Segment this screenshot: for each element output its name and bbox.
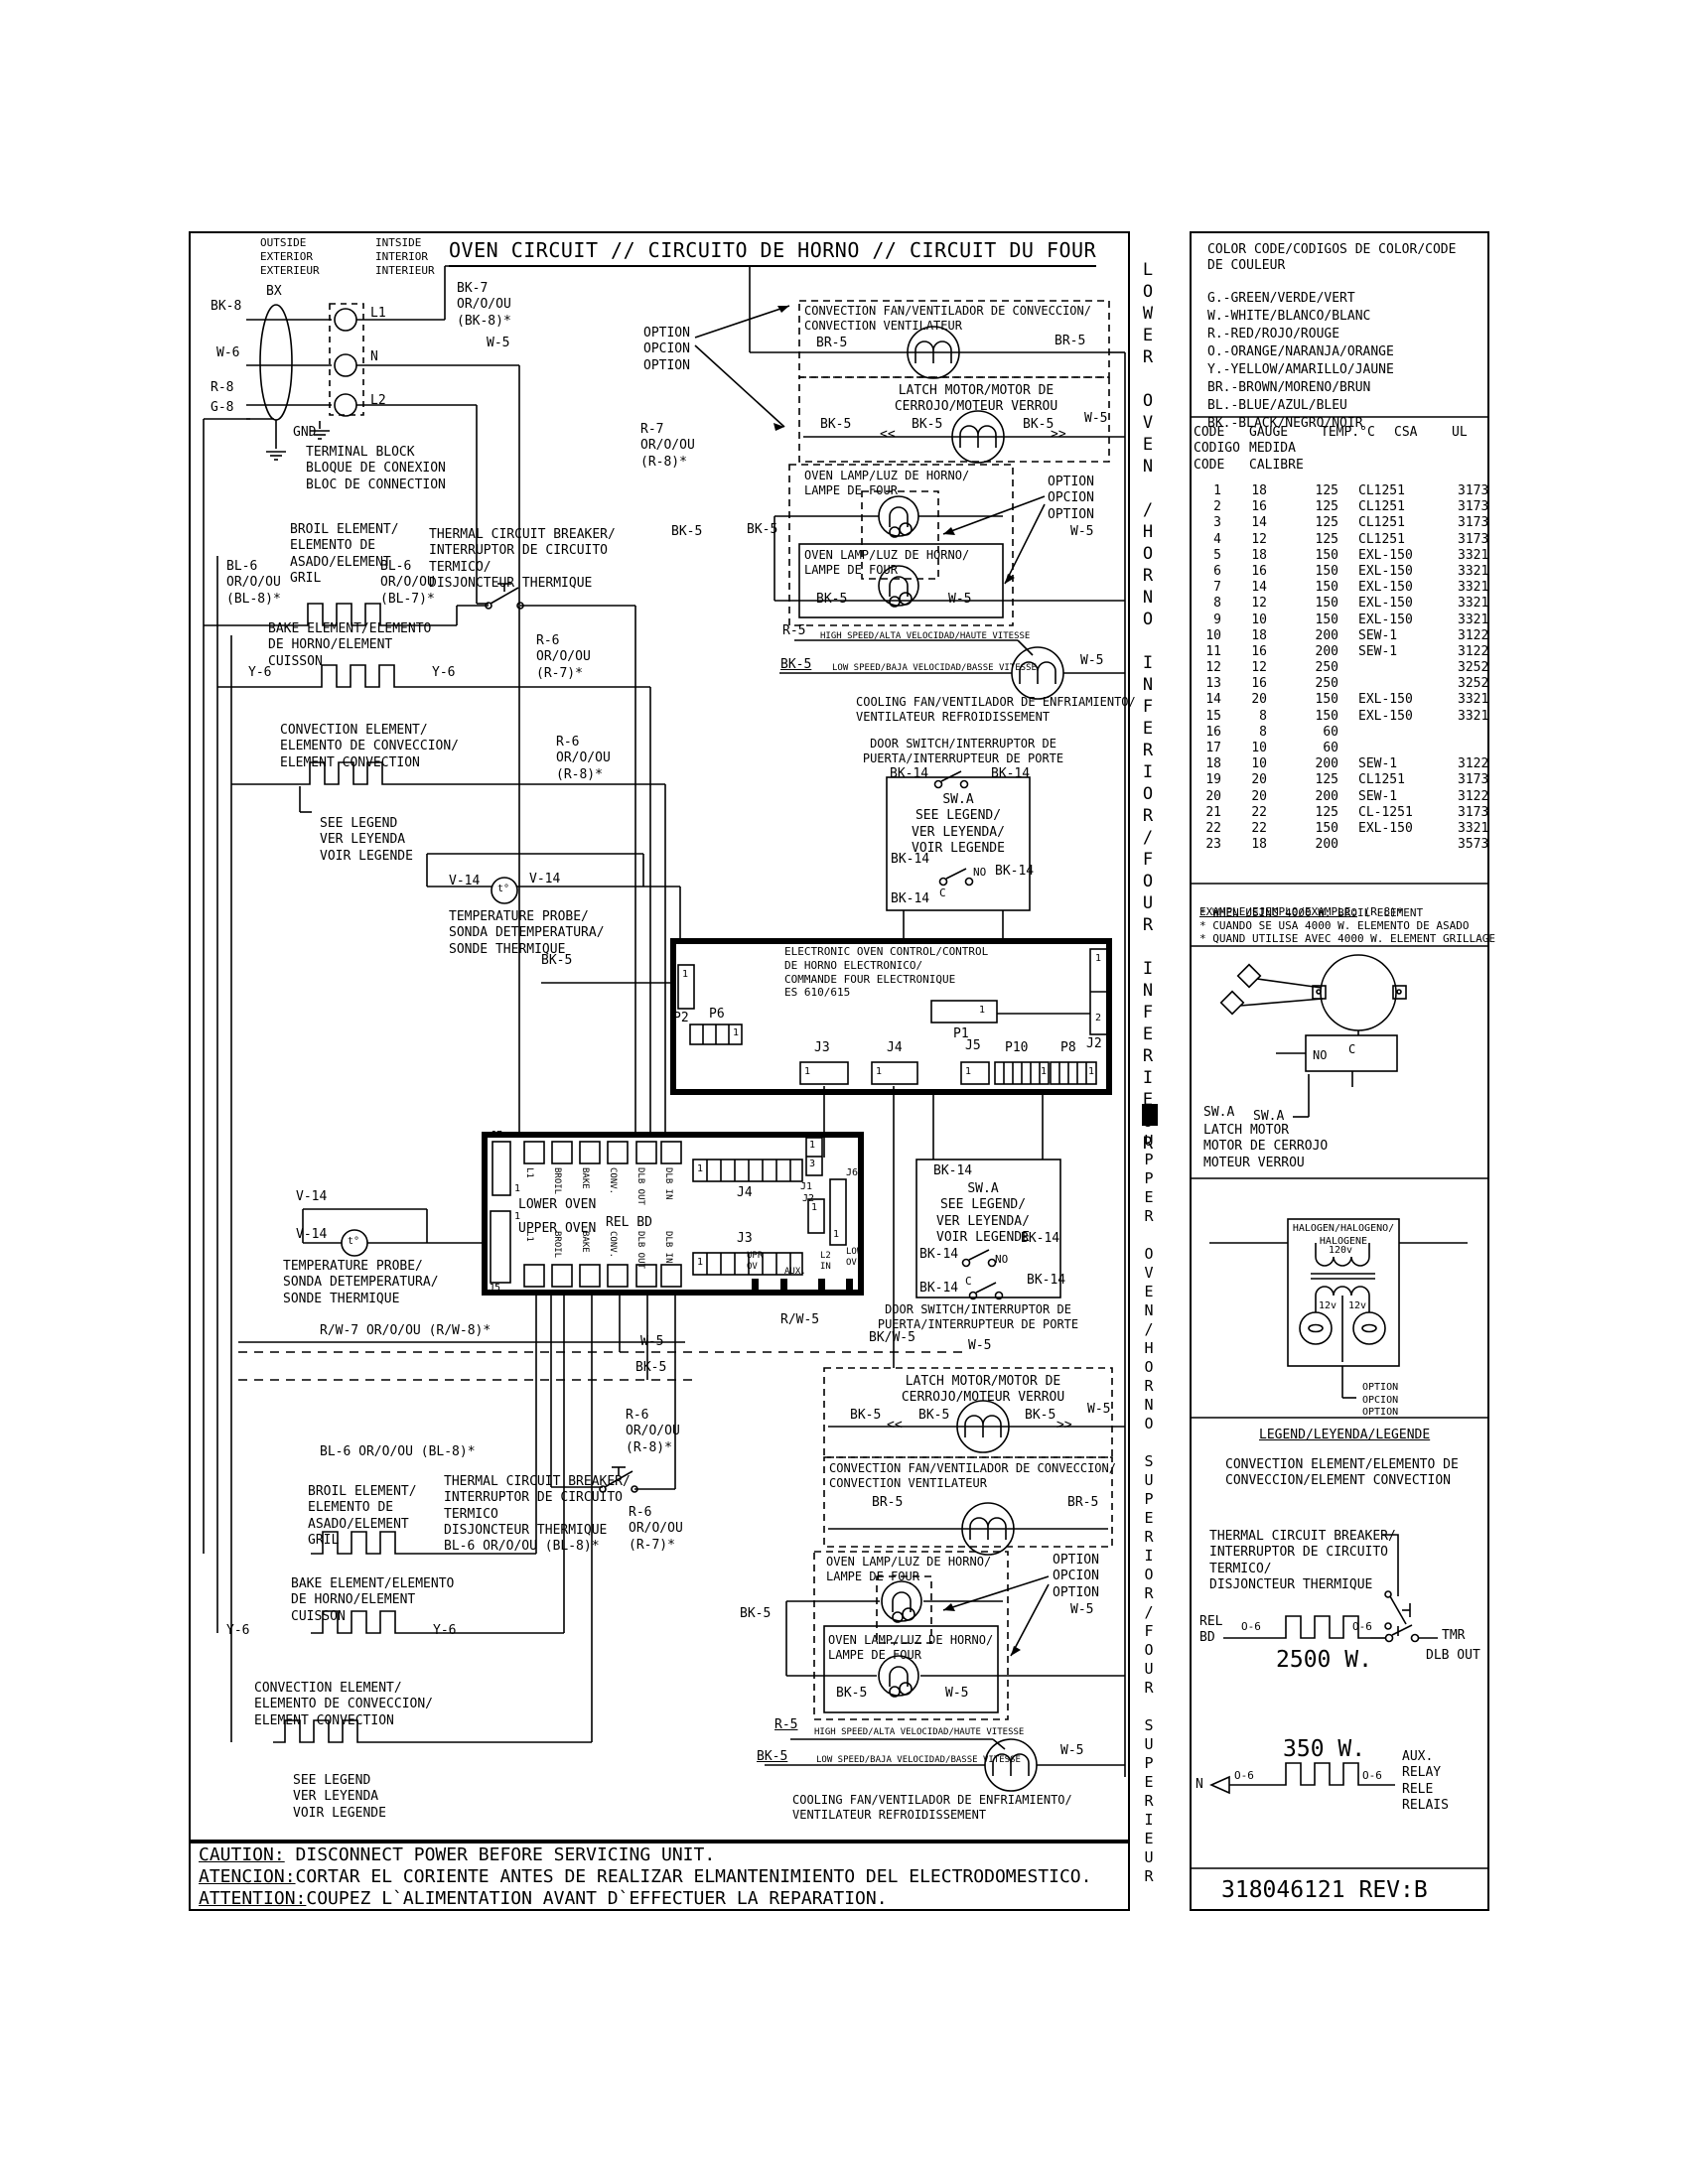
- wire-label-bl6-line1: BL-6 OR/O/OU (BL-8)*: [320, 1444, 476, 1460]
- wire-table-cell: CL-1251: [1338, 805, 1454, 821]
- wire-table-cell: 5: [1188, 548, 1221, 564]
- wire-label-bk5-g: BK-5: [816, 592, 847, 608]
- wire-table-cell: 16: [1188, 725, 1221, 741]
- eoc-j2-pin1: 1: [1095, 953, 1101, 966]
- oven-lamp-label-2b: OVEN LAMP/LUZ DE HORNO/ LAMPE DE FOUR: [828, 1633, 993, 1663]
- wire-table-cell: 9: [1188, 613, 1221, 628]
- contact-no-lower: NO: [973, 866, 986, 880]
- relay-pin-labels-bottom: L1BROILBAKECONV.DLB OUTDLB IN: [524, 1231, 682, 1291]
- wire-label-r6-8: R-6 OR/O/OU (R-8)*: [556, 735, 611, 783]
- wire-label-w5-top: W-5: [487, 336, 509, 351]
- wire-table-cell: 3173: [1454, 499, 1507, 515]
- wire-label-bk5-k: BK-5: [918, 1408, 949, 1424]
- wire-label-bk14-h: BK-14: [919, 1247, 958, 1263]
- wire-table-row: 616150EXL-1503321: [1188, 564, 1507, 580]
- rel-j1-pin3: 3: [809, 1159, 815, 1171]
- legend-n: N: [1196, 1777, 1203, 1793]
- wire-table-row: 714150EXL-1503321: [1188, 580, 1507, 596]
- wire-table-cell: 150: [1267, 692, 1338, 708]
- table-header-code: CODE CODIGO CODE: [1194, 425, 1240, 474]
- wire-table-cell: 13: [1188, 676, 1221, 692]
- eoc-j5-pin1: 1: [965, 1066, 971, 1079]
- wire-table-row: 158150EXL-1503321: [1188, 709, 1507, 725]
- wire-label-r7: R-7 OR/O/OU (R-8)*: [640, 422, 695, 471]
- wire-label-br5-b: BR-5: [1055, 334, 1085, 349]
- wire-table-row: 1420150EXL-1503321: [1188, 692, 1507, 708]
- wire-table-cell: SEW-1: [1338, 756, 1454, 772]
- legend-rel-bd: REL BD: [1199, 1614, 1222, 1647]
- wire-label-bk5-n: BK-5: [836, 1686, 867, 1702]
- wire-table-cell: SEW-1: [1338, 628, 1454, 644]
- wire-table-cell: 18: [1188, 756, 1221, 772]
- page-title: OVEN CIRCUIT // CIRCUITO DE HORNO // CIR…: [449, 238, 1096, 267]
- wire-table-cell: CL1251: [1338, 499, 1454, 515]
- wire-label-bk5-e: BK-5: [1023, 417, 1054, 433]
- example-notes: * WHEN USING 4000 W. BROIL ELEMENT* CUAN…: [1199, 906, 1495, 945]
- convection-element-label-lower: CONVECTION ELEMENT/ ELEMENTO DE CONVECCI…: [280, 723, 459, 771]
- wire-label-w5-c: W-5: [948, 592, 971, 608]
- wire-table-cell: EXL-150: [1338, 613, 1454, 628]
- list-item: DLB IN: [663, 1231, 682, 1291]
- wire-label-bk5-m: BK-5: [740, 1606, 771, 1622]
- wire-table-cell: 200: [1267, 644, 1338, 660]
- wire-table-cell: EXL-150: [1338, 692, 1454, 708]
- wire-label-w5-e: W-5: [640, 1334, 663, 1350]
- wire-table-cell: EXL-150: [1338, 580, 1454, 596]
- wire-table-cell: 10: [1221, 613, 1267, 628]
- oven-lamp-symbols: [879, 496, 921, 1697]
- legend-dlb-out: DLB OUT: [1426, 1648, 1480, 1664]
- wire-table-cell: 20: [1221, 692, 1267, 708]
- wire-table-cell: 250: [1267, 660, 1338, 676]
- eoc-j2-label: J2: [1086, 1036, 1102, 1052]
- wire-table-cell: 10: [1221, 741, 1267, 756]
- wire-table-cell: 2: [1188, 499, 1221, 515]
- terminal-block-label: TERMINAL BLOCK BLOQUE DE CONEXION BLOC D…: [306, 445, 446, 493]
- wire-table-row: 910150EXL-1503321: [1188, 613, 1507, 628]
- wire-table-cell: 22: [1188, 821, 1221, 837]
- wire-table-cell: 150: [1267, 709, 1338, 725]
- wire-table-cell: 200: [1267, 837, 1338, 853]
- eoc-j2-pin2: 2: [1095, 1013, 1101, 1025]
- wire-table-cell: 150: [1267, 821, 1338, 837]
- contact-c-upper: C: [965, 1275, 972, 1289]
- wire-table-cell: 125: [1267, 772, 1338, 788]
- list-item: DLB OUT: [635, 1231, 654, 1291]
- eoc-label: ELECTRONIC OVEN CONTROL/CONTROL DE HORNO…: [784, 945, 988, 1000]
- wire-label-r6-8-upper: R-6 OR/O/OU (R-8)*: [626, 1408, 680, 1456]
- gnd-label: GND: [293, 425, 316, 441]
- wire-table-cell: 3173: [1454, 805, 1507, 821]
- wire-table-cell: 150: [1267, 596, 1338, 612]
- wire-table-cell: 3122: [1454, 644, 1507, 660]
- chevron-left-icon: <<: [880, 427, 896, 443]
- wire-table-cell: 11: [1188, 644, 1221, 660]
- wire-label-r8: R-8: [211, 380, 233, 396]
- wire-table-cell: 150: [1267, 613, 1338, 628]
- wire-table-cell: 7: [1188, 580, 1221, 596]
- wire-table-cell: 18: [1221, 483, 1267, 499]
- wire-table-cell: 150: [1267, 548, 1338, 564]
- wire-table-cell: 20: [1221, 789, 1267, 805]
- legend-o6-b: O-6: [1352, 1620, 1372, 1634]
- wire-table-cell: 200: [1267, 628, 1338, 644]
- halogen-option-label: OPTION OPCION OPTION: [1362, 1382, 1398, 1420]
- wire-table-cell: 21: [1188, 805, 1221, 821]
- sidebar-upper-oven: UPPER OVEN/HORNO SUPERIOR/FOUR SUPERIEUR: [1140, 1132, 1158, 1886]
- wire-table-cell: 3321: [1454, 692, 1507, 708]
- legend-convection: CONVECTION ELEMENT/ELEMENTO DE CONVECCIO…: [1225, 1457, 1459, 1490]
- low-speed-label-lower: LOW SPEED/BAJA VELOCIDAD/BASSE VITESSE: [832, 663, 1037, 674]
- wire-table-cell: 16: [1221, 499, 1267, 515]
- rel-l2-in-label: L2 IN: [820, 1251, 831, 1274]
- cooling-fan-label-upper: COOLING FAN/VENTILADOR DE ENFRIAMIENTO/ …: [792, 1793, 1072, 1823]
- wire-label-bkw5: BK/W-5: [869, 1330, 915, 1346]
- wire-table-cell: SEW-1: [1338, 644, 1454, 660]
- wire-table-row: 2020200SEW-13122: [1188, 789, 1507, 805]
- wire-label-br5-a: BR-5: [816, 336, 847, 351]
- latch-motor-label-upper: LATCH MOTOR/MOTOR DE CERROJO/MOTEUR VERR…: [859, 1374, 1107, 1407]
- legend-breaker: THERMAL CIRCUIT BREAKER/ INTERRUPTOR DE …: [1209, 1529, 1396, 1593]
- wire-table-cell: 12: [1188, 660, 1221, 676]
- latch-caption: LATCH MOTOR MOTOR DE CERROJO MOTEUR VERR…: [1203, 1123, 1328, 1171]
- wire-label-y6-b: Y-6: [432, 665, 455, 681]
- wire-table-cell: 16: [1221, 676, 1267, 692]
- rel-bd-label: REL BD: [606, 1215, 652, 1231]
- convection-element-label-upper: CONVECTION ELEMENT/ ELEMENTO DE CONVECCI…: [254, 1681, 433, 1729]
- rel-low-ov-label: LOW OV: [846, 1247, 862, 1270]
- list-item: BL.-BLUE/AZUL/BLEU: [1207, 397, 1394, 415]
- wire-table-cell: 19: [1188, 772, 1221, 788]
- wire-label-bk14-j: BK-14: [1027, 1273, 1065, 1289]
- wire-table-cell: 6: [1188, 564, 1221, 580]
- wire-label-bl6-line2: BL-6 OR/O/OU (BL-8)*: [444, 1539, 600, 1555]
- color-code-list: G.-GREEN/VERDE/VERTW.-WHITE/BLANCO/BLANC…: [1207, 290, 1394, 433]
- table-header-csa: CSA: [1394, 425, 1417, 441]
- wire-table-row: 1810200SEW-13122: [1188, 756, 1507, 772]
- caution-label-2: ATENCION:: [199, 1866, 296, 1887]
- wire-table-cell: 12: [1221, 596, 1267, 612]
- latch-motor-drawing: [1221, 955, 1406, 1117]
- thermal-breaker-symbols: [486, 584, 637, 1492]
- convection-fan-label-upper: CONVECTION FAN/VENTILADOR DE CONVECCION/…: [829, 1461, 1116, 1491]
- wire-label-w5-g: W-5: [1087, 1402, 1110, 1418]
- wire-table-cell: 3252: [1454, 676, 1507, 692]
- wire-label-bk8: BK-8: [211, 299, 241, 315]
- wire-table-row: 13162503252: [1188, 676, 1507, 692]
- wire-table-cell: EXL-150: [1338, 709, 1454, 725]
- wire-label-bk7: BK-7 OR/O/OU (BK-8)*: [457, 281, 511, 330]
- wire-label-bk5-l: BK-5: [1025, 1408, 1055, 1424]
- caution-line-2: ATENCION:CORTAR EL CORIENTE ANTES DE REA…: [199, 1866, 1091, 1887]
- terminal-n: N: [370, 349, 378, 365]
- legend-aux-relay: AUX. RELAY RELE RELAIS: [1402, 1749, 1449, 1814]
- wire-table-cell: 10: [1188, 628, 1221, 644]
- latch-swa1-label: SW.A: [1203, 1105, 1234, 1121]
- wire-label-bk5-h: BK-5: [780, 657, 811, 673]
- wire-label-v14-d: V-14: [296, 1227, 327, 1243]
- wire-table-cell: 3: [1188, 515, 1221, 531]
- rel-j6-pin1: 1: [833, 1229, 839, 1242]
- wire-table-cell: CL1251: [1338, 772, 1454, 788]
- color-code-title: COLOR CODE/CODIGOS DE COLOR/CODE DE COUL…: [1207, 242, 1456, 275]
- wire-label-bk14-b: BK-14: [991, 766, 1030, 782]
- legend-tmr: TMR: [1442, 1628, 1465, 1644]
- wire-label-rw5: R/W-5: [780, 1312, 819, 1328]
- latch-c-label: C: [1348, 1042, 1355, 1057]
- wire-label-v14-a: V-14: [449, 874, 480, 889]
- wire-table-cell: 8: [1221, 709, 1267, 725]
- wire-table-cell: 8: [1221, 725, 1267, 741]
- wire-table-cell: 20: [1188, 789, 1221, 805]
- wire-table-cell: 4: [1188, 532, 1221, 548]
- oven-wiring-diagram: OUTSIDE EXTERIOR EXTERIEUR INTSIDE INTER…: [0, 0, 1688, 2184]
- wire-table-row: 171060: [1188, 741, 1507, 756]
- broil-element-label-upper: BROIL ELEMENT/ ELEMENTO DE ASADO/ELEMENT…: [308, 1484, 417, 1549]
- bake-element-label-lower: BAKE ELEMENT/ELEMENTO DE HORNO/ELEMENT C…: [268, 621, 431, 670]
- latch-no-label: NO: [1313, 1048, 1327, 1063]
- legend-o6-c: O-6: [1234, 1769, 1254, 1783]
- wire-table-cell: 22: [1221, 805, 1267, 821]
- wire-label-br5-d: BR-5: [1067, 1495, 1098, 1511]
- oven-lamp-label-1a: OVEN LAMP/LUZ DE HORNO/ LAMPE DE FOUR: [804, 469, 969, 498]
- wire-table-cell: 18: [1221, 628, 1267, 644]
- wire-table-cell: 18: [1221, 837, 1267, 853]
- eoc-j5-label: J5: [965, 1038, 981, 1054]
- legend-o6-a: O-6: [1241, 1620, 1261, 1634]
- wire-table-cell: 150: [1267, 580, 1338, 596]
- wire-table-row: 2222150EXL-1503321: [1188, 821, 1507, 837]
- halogen-12v-a: 12v: [1319, 1300, 1336, 1313]
- rel-j1-label: J1: [800, 1181, 812, 1194]
- wire-table-cell: 3122: [1454, 789, 1507, 805]
- eoc-p6-label: P6: [709, 1007, 725, 1023]
- wire-table-cell: 3321: [1454, 821, 1507, 837]
- option-label-3: OPTION OPCION OPTION: [1053, 1553, 1099, 1601]
- caution-text-2: CORTAR EL CORIENTE ANTES DE REALIZAR ELM…: [296, 1866, 1092, 1887]
- legend-2500w: 2500 W.: [1276, 1646, 1372, 1675]
- wire-table-cell: 125: [1267, 805, 1338, 821]
- see-legend-upper: SEE LEGEND VER LEYENDA VOIR LEGENDE: [293, 1773, 386, 1822]
- wire-table-cell: EXL-150: [1338, 548, 1454, 564]
- wire-label-bk5-j: BK-5: [850, 1408, 881, 1424]
- eoc-p10-label: P10: [1005, 1040, 1028, 1056]
- bake-element-label-upper: BAKE ELEMENT/ELEMENTO DE HORNO/ELEMENT C…: [291, 1576, 454, 1625]
- rel-upr-ov-label: UPR OV: [747, 1251, 763, 1274]
- contact-c-lower: C: [939, 887, 946, 900]
- wire-label-bk5-c: BK-5: [820, 417, 851, 433]
- wire-table-cell: 16: [1221, 564, 1267, 580]
- eoc-p2-label: P2: [673, 1011, 689, 1026]
- wire-table-row: 12122503252: [1188, 660, 1507, 676]
- option-label-2: OPTION OPCION OPTION: [1048, 475, 1094, 523]
- legend-350w: 350 W.: [1283, 1735, 1365, 1764]
- caution-label-1: CAUTION:: [199, 1844, 285, 1865]
- wire-table-cell: 15: [1188, 709, 1221, 725]
- rel-j2-pin1: 1: [811, 1202, 817, 1215]
- wire-table-row: 1116200SEW-13122: [1188, 644, 1507, 660]
- probe-t-symbol-2: t°: [348, 1236, 359, 1249]
- caution-text-3: COUPEZ L`ALIMENTATION AVANT D`EFFECTUER …: [306, 1888, 887, 1909]
- rel-upper-oven-label: UPPER OVEN: [518, 1221, 596, 1237]
- wire-table-cell: 3321: [1454, 596, 1507, 612]
- wire-label-bk5-o: BK-5: [757, 1749, 787, 1765]
- wire-table-cell: 20: [1221, 772, 1267, 788]
- probe-t-symbol-1: t°: [497, 884, 509, 896]
- wire-table-cell: 3321: [1454, 709, 1507, 725]
- wire-table-cell: 125: [1267, 515, 1338, 531]
- rel-j7-label: J7: [491, 1130, 502, 1143]
- eoc-p6-pin1: 1: [733, 1027, 739, 1040]
- wire-table-cell: 3122: [1454, 756, 1507, 772]
- rel-j6-label: J6: [846, 1167, 858, 1180]
- caution-line-1: CAUTION: DISCONNECT POWER BEFORE SERVICI…: [199, 1844, 715, 1865]
- wire-table-cell: CL1251: [1338, 483, 1454, 499]
- wire-table-row: 812150EXL-1503321: [1188, 596, 1507, 612]
- wire-table-cell: 17: [1188, 741, 1221, 756]
- wire-label-w6: W-6: [216, 345, 239, 361]
- wire-label-bk14-d: BK-14: [995, 864, 1034, 880]
- wire-label-bk5-i: BK-5: [635, 1360, 666, 1376]
- wire-label-r5-b: R-5: [774, 1717, 797, 1733]
- wire-label-w5-d: W-5: [1080, 653, 1103, 669]
- wire-table-cell: 10: [1221, 756, 1267, 772]
- wire-table-cell: 60: [1267, 725, 1338, 741]
- outside-label: OUTSIDE EXTERIOR EXTERIEUR: [260, 236, 320, 277]
- wire-table-cell: 200: [1267, 789, 1338, 805]
- list-item: O.-ORANGE/NARANJA/ORANGE: [1207, 343, 1394, 361]
- wire-table-cell: EXL-150: [1338, 564, 1454, 580]
- rel-j4-pin1: 1: [697, 1163, 703, 1176]
- oven-lamp-label-1b: OVEN LAMP/LUZ DE HORNO/ LAMPE DE FOUR: [804, 548, 969, 578]
- list-item: * QUAND UTILISE AVEC 4000 W. ELEMENT GRI…: [1199, 932, 1495, 945]
- contact-no-upper: NO: [995, 1253, 1008, 1267]
- legend-o6-d: O-6: [1362, 1769, 1382, 1783]
- wire-label-r6-7-upper: R-6 OR/O/OU (R-7)*: [629, 1505, 683, 1554]
- wire-table-cell: 3173: [1454, 483, 1507, 499]
- terminal-l1: L1: [370, 306, 386, 322]
- wire-table-cell: 3173: [1454, 532, 1507, 548]
- wire-table-cell: 60: [1267, 741, 1338, 756]
- chevron-right-icon: >>: [1051, 427, 1066, 443]
- wire-label-bk5-d: BK-5: [912, 417, 942, 433]
- list-item: BROIL: [552, 1231, 571, 1291]
- halogen-12v-b: 12v: [1348, 1300, 1366, 1313]
- rel-lower-oven-label: LOWER OVEN: [518, 1197, 596, 1213]
- wire-label-y6-a: Y-6: [248, 665, 271, 681]
- chevron-left-icon-2: <<: [887, 1418, 903, 1433]
- wire-label-bk14-c: BK-14: [891, 852, 929, 868]
- wire-label-y6-c: Y-6: [226, 1623, 249, 1639]
- wire-label-bk14-g: BK-14: [1021, 1231, 1059, 1247]
- wire-table-cell: 23: [1188, 837, 1221, 853]
- list-item: * WHEN USING 4000 W. BROIL ELEMENT: [1199, 906, 1495, 919]
- wire-table-row: 412125CL12513173: [1188, 532, 1507, 548]
- list-item: BAKE: [580, 1231, 599, 1291]
- wire-table-cell: CL1251: [1338, 515, 1454, 531]
- table-header-ul: UL: [1452, 425, 1468, 441]
- wire-table-row: 23182003573: [1188, 837, 1507, 853]
- list-item: R.-RED/ROJO/ROUGE: [1207, 326, 1394, 343]
- halogen-120v: 120v: [1329, 1245, 1352, 1258]
- eoc-j3-pin1: 1: [804, 1066, 810, 1079]
- wire-label-bk14-e: BK-14: [891, 891, 929, 907]
- rel-aux-label: AUX.: [784, 1267, 806, 1278]
- list-item: CONV.: [608, 1231, 627, 1291]
- wire-table-cell: 250: [1267, 676, 1338, 692]
- wire-table-cell: 8: [1188, 596, 1221, 612]
- list-item: G.-GREEN/VERDE/VERT: [1207, 290, 1394, 308]
- wire-table-cell: 3321: [1454, 580, 1507, 596]
- thermal-breaker-label-lower: THERMAL CIRCUIT BREAKER/ INTERRUPTOR DE …: [429, 527, 616, 592]
- wire-table-cell: 3252: [1454, 660, 1507, 676]
- wire-table-row: 314125CL12513173: [1188, 515, 1507, 531]
- wire-table-row: 216125CL12513173: [1188, 499, 1507, 515]
- legend-title: LEGEND/LEYENDA/LEGENDE: [1259, 1428, 1430, 1443]
- eoc-p2-pin1: 1: [682, 969, 688, 982]
- wire-table-cell: SEW-1: [1338, 789, 1454, 805]
- wire-table-cell: 3321: [1454, 564, 1507, 580]
- wire-table-cell: 3173: [1454, 772, 1507, 788]
- eoc-p1-pin1: 1: [979, 1005, 985, 1018]
- wire-table-cell: 150: [1267, 564, 1338, 580]
- wire-table-cell: 3173: [1454, 515, 1507, 531]
- table-header-temp: TEMP.°C: [1321, 425, 1375, 441]
- wire-label-w5-i: W-5: [945, 1686, 968, 1702]
- wire-table-row: 1018200SEW-13122: [1188, 628, 1507, 644]
- wire-table-cell: 3321: [1454, 613, 1507, 628]
- eoc-p8-pin1: 1: [1088, 1066, 1094, 1079]
- wire-table-cell: EXL-150: [1338, 596, 1454, 612]
- door-switch-label-upper: DOOR SWITCH/INTERRUPTOR DE PUERTA/INTERR…: [839, 1302, 1117, 1332]
- rel-j4-label: J4: [737, 1185, 753, 1201]
- wire-label-r6-7: R-6 OR/O/OU (R-7)*: [536, 633, 591, 682]
- wire-label-g8: G-8: [211, 400, 233, 416]
- list-item: L1: [524, 1231, 543, 1291]
- wire-label-bl6-7: BL-6 OR/O/OU (BL-7)*: [380, 559, 435, 608]
- wire-table-cell: 125: [1267, 532, 1338, 548]
- temperature-probe-label-upper: TEMPERATURE PROBE/ SONDA DETEMPERATURA/ …: [283, 1259, 439, 1307]
- wire-table-row: 2122125CL-12513173: [1188, 805, 1507, 821]
- wire-table-row: 518150EXL-1503321: [1188, 548, 1507, 564]
- list-item: BR.-BROWN/MORENO/BRUN: [1207, 379, 1394, 397]
- oven-lamp-label-2a: OVEN LAMP/LUZ DE HORNO/ LAMPE DE FOUR: [826, 1555, 991, 1584]
- wire-table-row: 118125CL12513173: [1188, 483, 1507, 499]
- wire-table-cell: 125: [1267, 499, 1338, 515]
- wire-label-bk5-a: BK-5: [541, 953, 572, 969]
- rel-j3-label: J3: [737, 1231, 753, 1247]
- high-speed-label-upper: HIGH SPEED/ALTA VELOCIDAD/HAUTE VITESSE: [814, 1727, 1024, 1738]
- inside-label: INTSIDE INTERIOR INTERIEUR: [375, 236, 435, 277]
- wire-table-cell: CL1251: [1338, 532, 1454, 548]
- wire-table-cell: EXL-150: [1338, 821, 1454, 837]
- wire-table-body: 118125CL12513173216125CL12513173314125CL…: [1188, 483, 1507, 853]
- caution-label-3: ATTENTION:: [199, 1888, 306, 1909]
- high-speed-label-lower: HIGH SPEED/ALTA VELOCIDAD/HAUTE VITESSE: [820, 631, 1030, 642]
- wire-table-cell: 16: [1221, 644, 1267, 660]
- wire-label-bk5-b: BK-5: [671, 524, 702, 540]
- eoc-p10-pin1: 1: [1041, 1066, 1047, 1079]
- part-number: 318046121 REV:B: [1221, 1876, 1428, 1905]
- wire-table-cell: 14: [1188, 692, 1221, 708]
- wire-label-br5-c: BR-5: [872, 1495, 903, 1511]
- latch-motor-label-lower: LATCH MOTOR/MOTOR DE CERROJO/MOTEUR VERR…: [852, 383, 1100, 416]
- thermal-breaker-label-upper: THERMAL CIRCUIT BREAKER/ INTERRUPTOR DE …: [444, 1474, 631, 1539]
- wire-table-row: 1920125CL12513173: [1188, 772, 1507, 788]
- eoc-j4-label: J4: [887, 1040, 903, 1056]
- terminal-l2: L2: [370, 393, 386, 409]
- wire-table-cell: 3573: [1454, 837, 1507, 853]
